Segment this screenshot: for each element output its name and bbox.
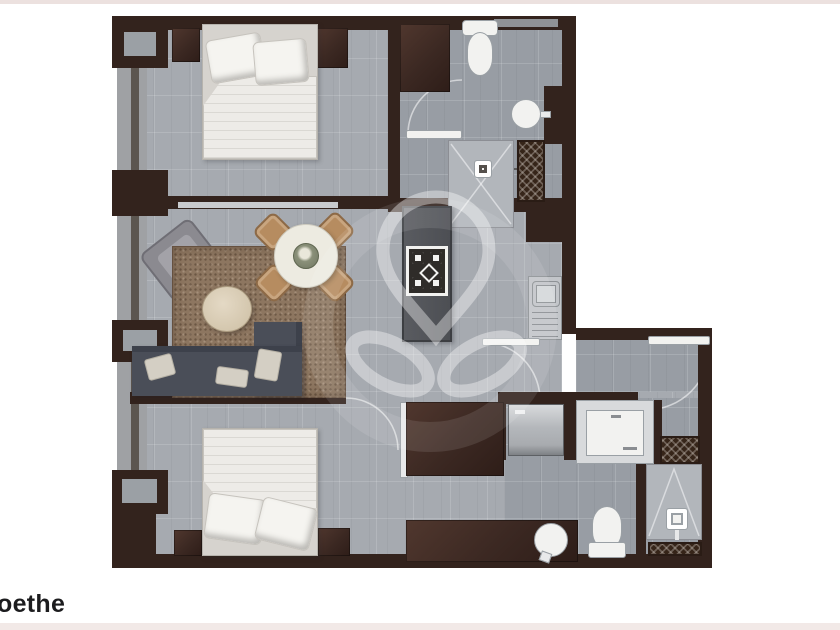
- shower1-stall: [448, 140, 514, 228]
- basin1-faucet: [540, 111, 551, 118]
- pier-left-2: [112, 170, 168, 216]
- nightstand-bed2-left: [174, 530, 202, 556]
- sofa-cushion-3: [254, 348, 283, 382]
- shower1-pattern: [448, 140, 514, 228]
- nightstand-bed1-right: [316, 28, 348, 68]
- shelf-unit-bath2-lower: [648, 542, 702, 556]
- toilet1-bowl: [467, 32, 493, 76]
- cooktop: [406, 246, 448, 296]
- pier-bottom-left-corner: [112, 510, 156, 568]
- nightstand-bed1-left: [172, 28, 200, 62]
- kitchen-sink-drainboard: [532, 309, 558, 337]
- shower2-stall: [646, 464, 702, 540]
- sliding-door-bedroom1: [178, 202, 338, 208]
- pier-left-4: [112, 470, 168, 514]
- bed1-duvet: [203, 76, 317, 159]
- floorplan-screenshot: oethe: [0, 0, 840, 630]
- wall-bedroom1-right: [388, 16, 400, 212]
- shower2-fixture-stem: [675, 530, 679, 540]
- burner-ne: [430, 252, 442, 264]
- wall-kitchen-chunk: [526, 198, 562, 242]
- window-top-segment: [494, 19, 558, 27]
- wall-washer-right: [564, 404, 576, 460]
- door-leaf-bath2: [648, 336, 710, 345]
- bed1-pillow-right: [252, 38, 310, 87]
- wardrobe-entry: [400, 24, 450, 92]
- wall-right-upper: [562, 16, 576, 334]
- pier-window-inset: [124, 32, 156, 56]
- basin2-round-sink: [534, 523, 568, 557]
- coffee-table-oval: [202, 286, 252, 332]
- burner-sw: [412, 277, 424, 289]
- appliance-control: [611, 415, 621, 418]
- wall-shower2-left: [636, 464, 646, 556]
- shower2-fixture: [666, 508, 688, 530]
- kitchen-sink-counter: [528, 276, 562, 340]
- basin1-round-sink: [511, 99, 541, 129]
- kitchen-sink-basin: [532, 281, 560, 307]
- shower1-drain: [474, 160, 492, 178]
- white-appliance: [586, 410, 644, 456]
- burner-nw: [412, 252, 424, 264]
- closet-bath2: [406, 402, 504, 476]
- dining-centerpiece: [293, 243, 319, 269]
- caption-text: oethe: [0, 590, 65, 619]
- washer-gray: [508, 404, 564, 456]
- washer-dot: [515, 410, 525, 414]
- door-leaf-bath1: [406, 130, 462, 139]
- pier-top-left-corner: [112, 16, 168, 68]
- pier-window-inset: [122, 479, 157, 503]
- door-leaf-hall: [482, 338, 540, 346]
- appliance-control-2: [623, 447, 637, 450]
- toilet2-tank: [588, 542, 626, 558]
- nightstand-bed2-right: [318, 528, 350, 556]
- shelf-unit-bath2-upper: [660, 436, 700, 464]
- shelf-unit-bath1: [517, 140, 545, 202]
